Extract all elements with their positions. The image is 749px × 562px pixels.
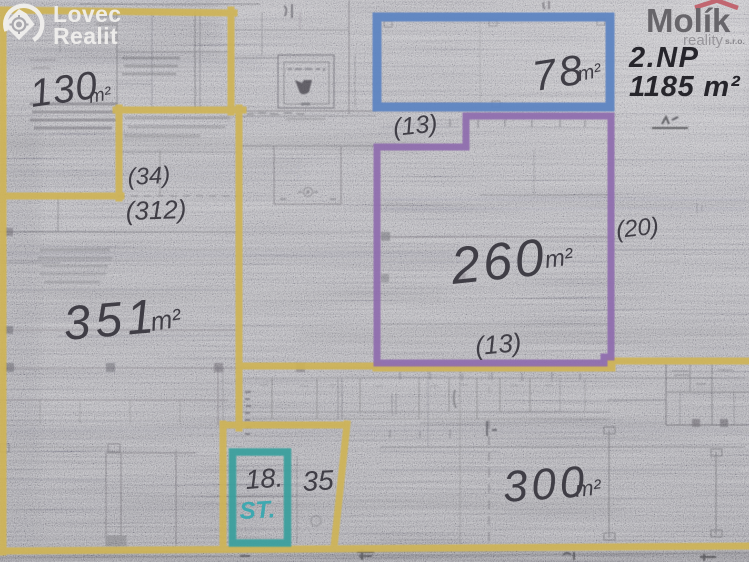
svg-text:(13): (13): [392, 109, 439, 141]
svg-text:m²: m²: [574, 474, 603, 502]
svg-text:reality: reality: [683, 32, 724, 49]
svg-text:m²: m²: [543, 243, 575, 274]
svg-text:ST.: ST.: [239, 496, 276, 525]
svg-text:(20): (20): [615, 213, 660, 244]
svg-text:m²: m²: [148, 302, 184, 337]
svg-text:m²: m²: [87, 83, 113, 108]
svg-text:1185 m²: 1185 m²: [629, 71, 741, 103]
svg-text:351: 351: [61, 290, 160, 351]
svg-text:(312): (312): [125, 194, 187, 226]
svg-text:35: 35: [302, 464, 335, 497]
svg-text:(13): (13): [474, 327, 523, 361]
svg-text:Realit: Realit: [53, 23, 118, 49]
svg-text:260: 260: [447, 228, 549, 296]
svg-text:18.: 18.: [244, 462, 284, 495]
svg-text:s.r.o.: s.r.o.: [725, 36, 745, 46]
svg-text:(34): (34): [127, 162, 171, 191]
